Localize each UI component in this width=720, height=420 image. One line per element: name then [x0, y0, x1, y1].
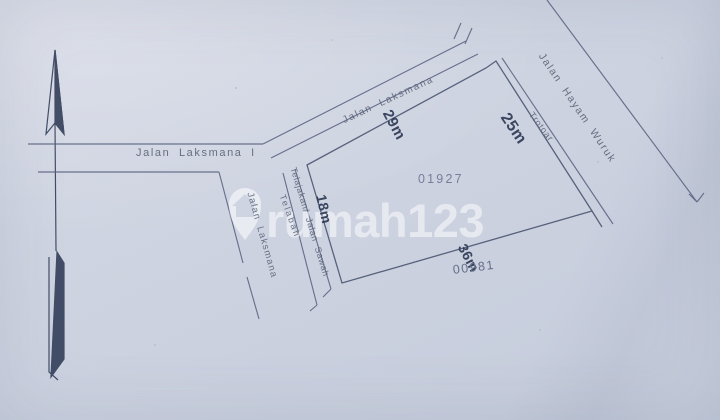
scanned-land-plot-sketch: rumah123 Jalan Laksmana Jalan Laksmana I… — [0, 0, 720, 420]
parcel-number-top: 01927 — [418, 172, 464, 186]
road-label-jalan-laksmana-i: Jalan Laksmana I — [136, 147, 256, 159]
